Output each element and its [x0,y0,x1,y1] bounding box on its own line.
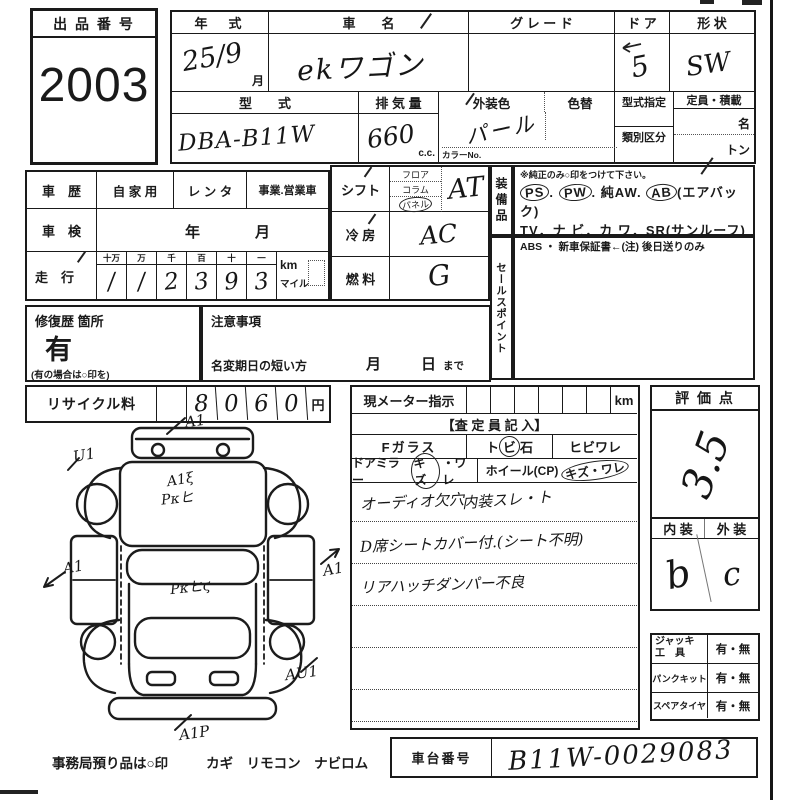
fglass-opt-stone: トビ石 [467,435,553,458]
pen-mark [77,251,86,263]
shift-options: フロア コラム パネル [390,167,442,212]
damage-code: A1 [184,411,207,432]
inspection-month-label: 月 [255,221,270,242]
evaluation-score: 3.5 [671,424,740,504]
evaluation-box: 評 価 点 3.5 内 装 外 装 b c [650,385,760,611]
name-value: ekワゴン [296,43,425,90]
door-value: 5 [628,49,652,85]
inspection-year-label: 年 [185,221,200,242]
shape-value: SW [684,47,732,83]
assessor-header: 【査 定 員 記 入】 [352,414,637,435]
capacity-tons-row: トン [674,135,754,160]
auction-number-value: 2003 [33,38,155,133]
tool-row: ジャッキ 工 具 有・無 [652,635,758,664]
tool-label: パンクキット [652,664,708,692]
name-change-month: 月 [366,353,381,374]
class-division-label: 類別区分 [615,127,673,147]
digit-value: / [125,264,157,300]
int-ext-header: 内 装 外 装 [652,517,758,539]
sep: . [592,185,597,200]
equip-ab: AB [646,183,678,202]
tool-label: ジャッキ 工 具 [652,635,708,663]
meter-label: 現メーター指示 [352,387,467,413]
year-month-suffix: 月 [252,72,264,89]
year-header: 年 式 [172,12,269,34]
shift-value: AT [446,171,485,206]
capacity-persons-unit: 名 [738,115,750,132]
meter-cell [515,387,539,413]
type-designation-cell: 型式指定 類別区分 [615,92,674,162]
office-note: 事務局預り品は○印 カギ リモコン ナビロム [52,752,368,772]
int-ext-values: b c [652,539,758,608]
history-label: 車 歴 [27,172,97,209]
model-value-cell: DBA-B11W [172,114,359,162]
tool-row: パンクキット 有・無 [652,664,758,693]
equipment-note: ※純正のみ○印をつけて下さい。 [520,168,748,181]
fuel-value: G [426,258,452,293]
note-line [352,648,637,690]
capacity-tons-unit: トン [726,141,750,158]
mileage-digits: 十万/ 万/ 千2 百3 十9 一3 [97,252,277,299]
meter-row: 現メーター指示 km [352,387,637,414]
shift-opt-floor: フロア [390,167,441,182]
repair-box: 修復歴 箇所 有 (有の場合は○印を) [25,305,201,382]
tool-row: スペアタイヤ 有・無 [652,693,758,718]
damage-code: Pκヒ [160,486,195,509]
assessor-notes: オーディオ欠穴 内装スレ・ト D席シートカバー付.(シート不明) リアハッチダン… [352,483,637,729]
history-private: 自 家 用 [97,172,174,209]
fglass-opt-crack: ヒビワレ [553,435,637,458]
vehicle-table: 年 式 車 名 グ レ ー ド ド ア 形 状 25/9 月 ekワゴン 5 S… [170,10,756,164]
color-no-label: カラーNo. [442,147,617,161]
name-value-cell: ekワゴン [269,34,469,92]
equipment-line1: PS. PW. 純AW. AB(エアバック) [520,182,748,220]
caution-label: 注意事項 [203,307,489,330]
digit-value: / [95,264,127,300]
mirror-cell: ドアミラー キズ・ワレ [352,459,478,482]
grade-header: グ レ ー ド [469,12,615,34]
scan-artifact [700,0,714,4]
sep: . [549,185,554,200]
fuel-label-cell: 燃 料 [332,257,390,299]
dotted-divider [545,112,546,140]
tool-value: 有・無 [708,664,758,692]
controls-table: シフト フロア コラム パネル AT 冷 房 AC 燃 料 G [330,165,490,301]
capacity-cell: 定員・積載 名 トン [674,92,754,162]
shift-value-cell: AT [442,167,490,212]
note-line [352,606,637,648]
sales-point-vertical-label: セールスポイント [490,236,513,380]
unit-km: km [280,258,297,272]
mileage-label-cell: 走 行 [27,252,97,299]
damage-code: A1 [322,558,345,579]
type-designation-label: 型式指定 [615,92,673,112]
door-value-cell: 5 [615,34,670,92]
note-line [352,690,637,722]
displacement-value: 660 [365,119,416,154]
equip-aw: 純AW. [601,185,642,200]
inspection-value-cell: 年 月 [97,209,328,252]
year-value: 25/9 [180,37,245,78]
evaluation-score-area: 3.5 [652,411,758,517]
digit-value: 9 [215,264,247,300]
history-table: 車 歴 自 家 用 レ ン タ 事業.営業車 車 検 年 月 走 行 十万/ 万… [25,170,330,301]
meter-cell [467,387,491,413]
color-change-header: 色替 [545,92,615,112]
mileage-unit-cell: km マイル [277,252,328,299]
equipment-vertical-label: 装備品 [490,165,513,236]
tool-value: 有・無 [708,693,758,718]
mile-checkbox [308,260,325,286]
auction-sheet: 出 品 番 号 2003 年 式 車 名 グ レ ー ド ド ア 形 状 25/… [0,0,800,800]
ac-value-cell: AC [390,212,490,257]
capacity-persons-row: 名 [674,109,754,135]
note-text: 内装スレ・ト [461,486,552,513]
tool-value: 有・無 [708,635,758,663]
note-text: オーディオ欠穴 [360,488,465,514]
model-header: 型 式 [172,92,359,114]
mileage-label: 走 行 [35,267,74,286]
tools-box: ジャッキ 工 具 有・無 パンクキット 有・無 スペアタイヤ 有・無 [650,633,760,721]
displacement-header: 排 気 量 [359,92,439,114]
office-note-items: カギ リモコン ナビロム [206,752,368,772]
chassis-box: 車台番号 B11W-0029083 [390,737,758,778]
office-note-lead: 事務局預り品は○印 [52,752,168,772]
fuel-value-cell: G [390,257,490,299]
damage-code: Pκヒϛ [169,575,211,599]
history-rental: レ ン タ [174,172,247,209]
sales-point-box [513,236,755,380]
shift-label: シフト [332,167,389,211]
digit-value: 2 [155,264,187,300]
evaluation-label: 評 価 点 [652,387,758,411]
exterior-color-cell: 外装色 色替 パール カラーNo. [439,92,615,162]
shape-header: 形 状 [670,12,754,34]
auction-number-label: 出 品 番 号 [33,11,155,38]
meter-cell [587,387,611,413]
note-text: リアハッチダンパー不良 [360,571,525,598]
digit-value: 3 [185,264,217,300]
chassis-value-cell: B11W-0029083 [492,739,756,776]
chassis-value: B11W-0029083 [507,735,734,777]
wheel-cell: ホイール(CP) キズ・ワレ [478,459,637,482]
displacement-value-cell: 660 c.c. [359,114,439,162]
inspection-label: 車 検 [27,209,97,252]
displacement-unit: c.c. [418,148,435,159]
type-designation-blank [615,112,673,127]
car-diagram: A1 U1 A1ξ Pκヒ A1 Pκヒϛ A1 AU1 A1P [35,412,350,750]
damage-code: U1 [72,444,97,466]
ac-label-cell: 冷 房 [332,212,390,257]
grade-value-cell [469,34,615,92]
unit-mile: マイル [280,276,309,290]
caution-box: 注意事項 名変期日の短い方 月 日 まで [201,305,491,382]
name-change-until: まで [443,358,464,373]
year-value-cell: 25/9 月 [172,34,269,92]
damage-code: A1 [62,556,85,577]
shift-opt-panel: パネル [390,197,441,212]
meter-cell [539,387,563,413]
meter-cell [491,387,515,413]
equipment-box: ※純正のみ○印をつけて下さい。 PS. PW. 純AW. AB(エアバック) T… [513,165,755,236]
tool-label: スペアタイヤ [652,693,708,718]
repair-note: (有の場合は○印を) [27,367,199,381]
note-text: D席シートカバー付.(シート不明) [360,528,584,557]
digit-value: 3 [245,264,277,300]
capacity-label: 定員・積載 [674,92,754,109]
shift-label-cell: シフト [332,167,390,212]
shift-opt-column: コラム [390,182,441,197]
chassis-label: 車台番号 [392,739,492,776]
door-header: ド ア [615,12,670,34]
meter-unit: km [611,387,637,413]
auction-number-box: 出 品 番 号 2003 [30,8,158,165]
repair-label: 修復歴 箇所 [27,307,199,330]
mirror-wheel-row: ドアミラー キズ・ワレ ホイール(CP) キズ・ワレ [352,459,637,483]
name-change-day: 日 [421,353,436,374]
note-line: D席シートカバー付.(シート不明) [352,522,637,564]
equip-ps: PS [519,183,549,202]
exterior-color-value: パール [463,107,540,151]
repair-value: 有 [27,328,199,367]
meter-box: 現メーター指示 km 【査 定 員 記 入】 Fガラス トビ石 ヒビワレ ドアミ… [350,385,640,730]
note-line: リアハッチダンパー不良 [352,564,637,606]
scan-edge-line [770,0,773,800]
scan-artifact [0,790,38,794]
shape-value-cell: SW [670,34,754,92]
fuel-label: 燃 料 [332,257,389,299]
name-change-label: 名変期日の短い方 [211,357,307,374]
ac-value: AC [419,218,459,250]
ac-label: 冷 房 [332,212,389,256]
meter-cell [563,387,587,413]
exterior-value: c [700,536,762,612]
history-business: 事業.営業車 [247,172,328,209]
model-value: DBA-B11W [177,121,316,157]
equip-pw: PW [558,183,592,202]
scan-artifact [742,0,762,5]
name-header: 車 名 [269,12,469,34]
note-line: オーディオ欠穴 内装スレ・ト [352,483,637,522]
